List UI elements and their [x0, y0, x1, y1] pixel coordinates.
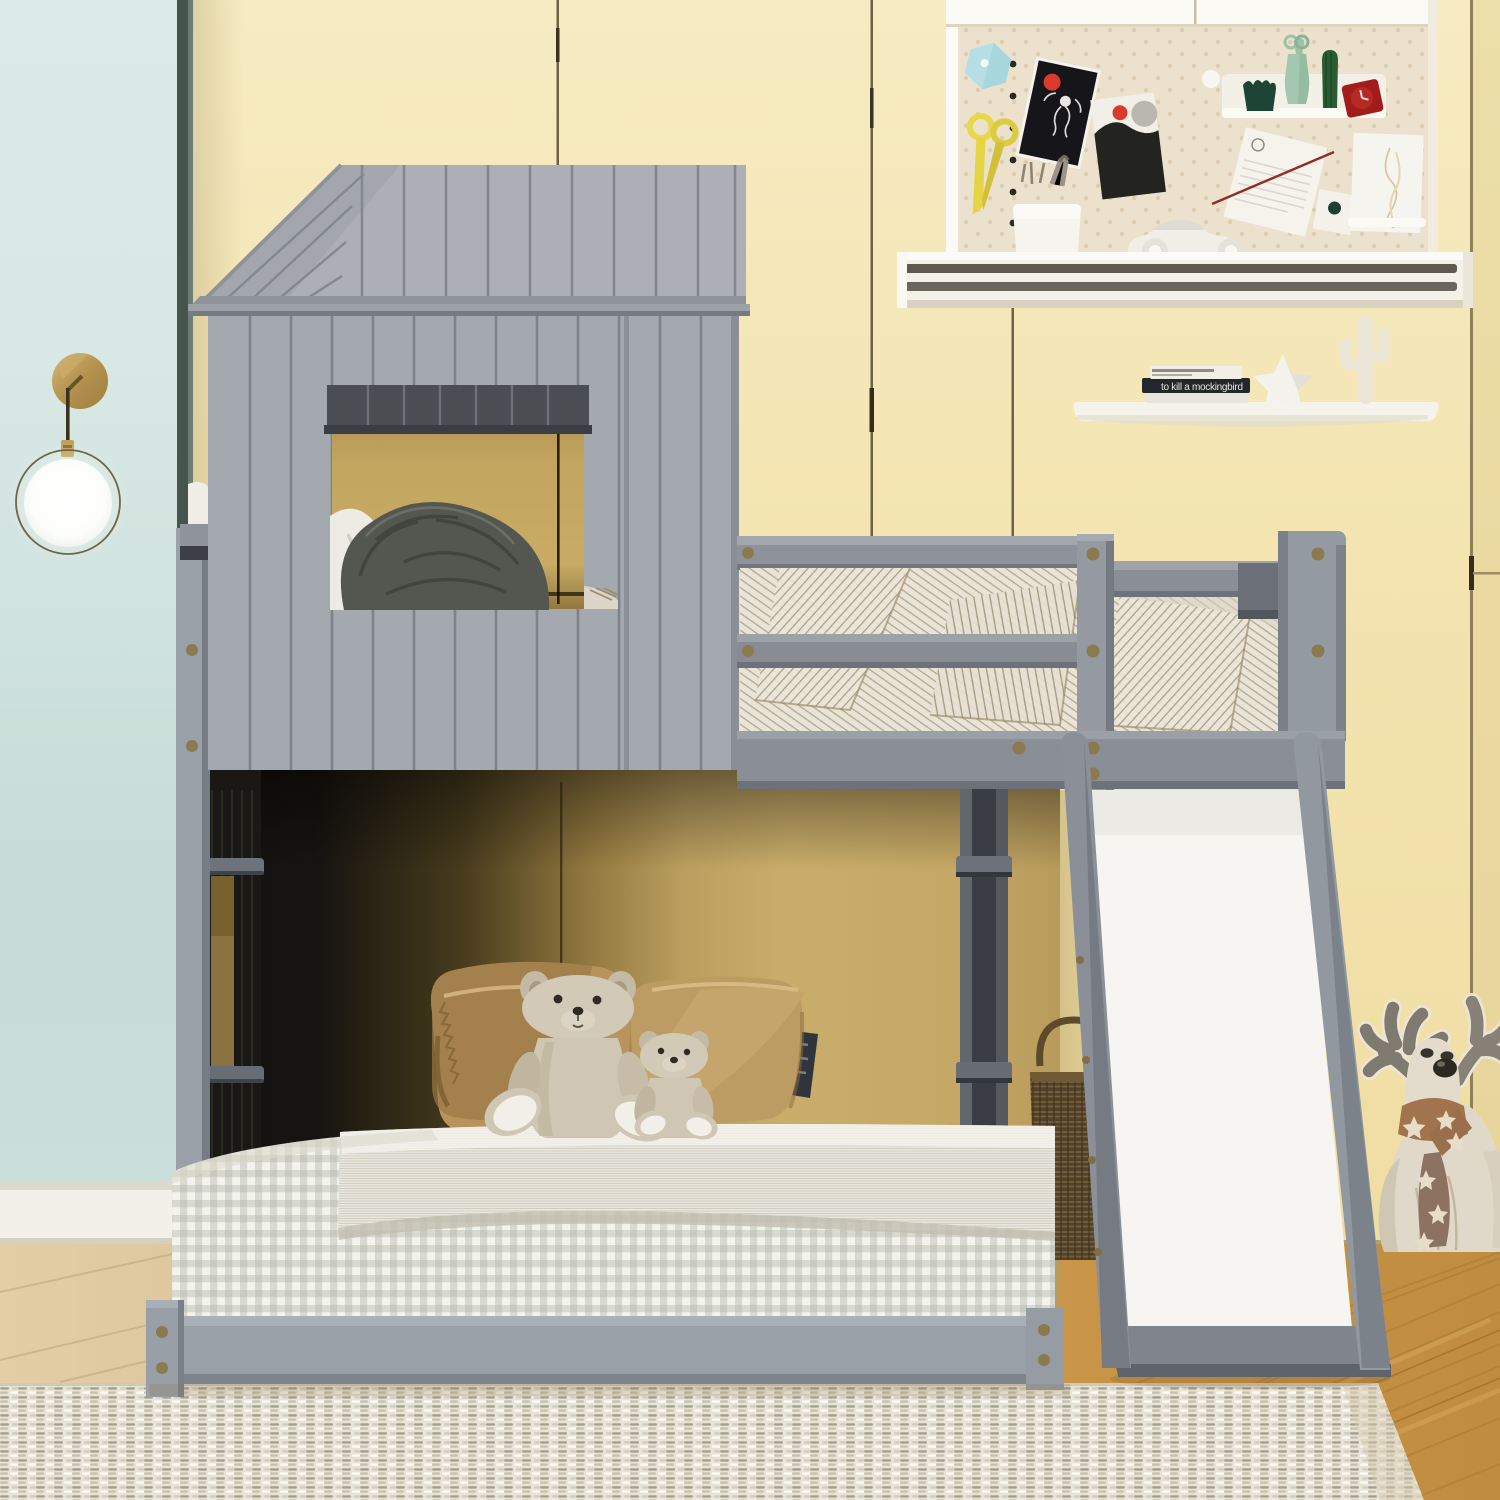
svg-text:to kill a mockingbird: to kill a mockingbird	[1161, 382, 1243, 393]
